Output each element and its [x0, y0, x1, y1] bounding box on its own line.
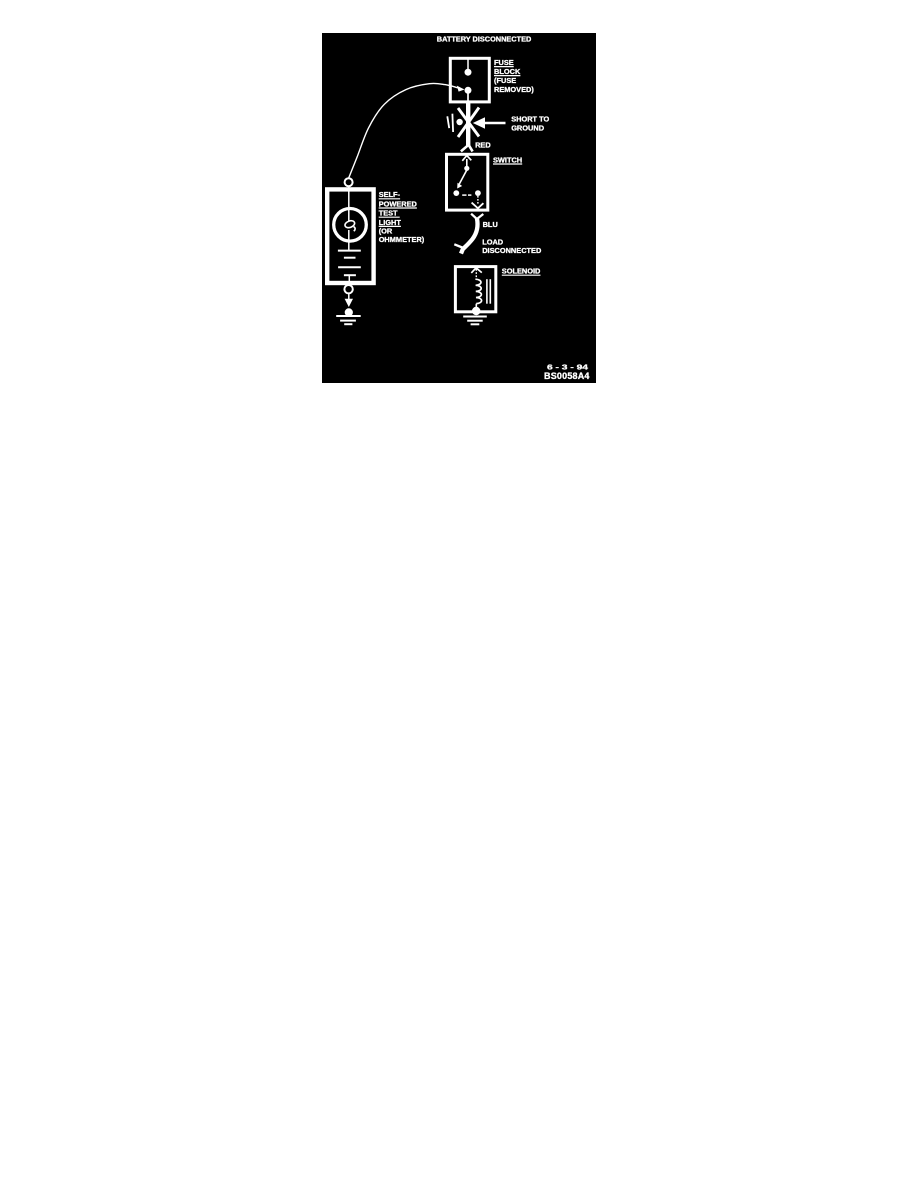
svg-text:FUSE: FUSE — [494, 58, 514, 67]
svg-text:OHMMETER): OHMMETER) — [379, 235, 425, 244]
svg-text:REMOVED): REMOVED) — [494, 85, 534, 94]
svg-text:SWITCH: SWITCH — [493, 155, 522, 164]
svg-text:LOAD: LOAD — [482, 237, 504, 246]
svg-text:GROUND: GROUND — [511, 123, 545, 132]
svg-text:RED: RED — [475, 140, 491, 149]
svg-text:POWERED: POWERED — [379, 199, 418, 208]
svg-text:(FUSE: (FUSE — [494, 76, 516, 85]
svg-text:TEST: TEST — [379, 209, 398, 218]
svg-text:LIGHT: LIGHT — [379, 218, 402, 227]
svg-text:DISCONNECTED: DISCONNECTED — [482, 246, 542, 255]
svg-text:SELF-: SELF- — [379, 190, 401, 199]
svg-text:BATTERY DISCONNECTED: BATTERY DISCONNECTED — [437, 34, 532, 43]
svg-text:BLOCK: BLOCK — [494, 67, 521, 76]
svg-text:SOLENOID: SOLENOID — [502, 267, 541, 276]
svg-text:BS0058A4: BS0058A4 — [544, 371, 590, 381]
svg-text:BLU: BLU — [483, 220, 498, 229]
svg-text:6 - 3 - 94: 6 - 3 - 94 — [547, 362, 589, 371]
svg-text:SHORT TO: SHORT TO — [511, 114, 549, 123]
